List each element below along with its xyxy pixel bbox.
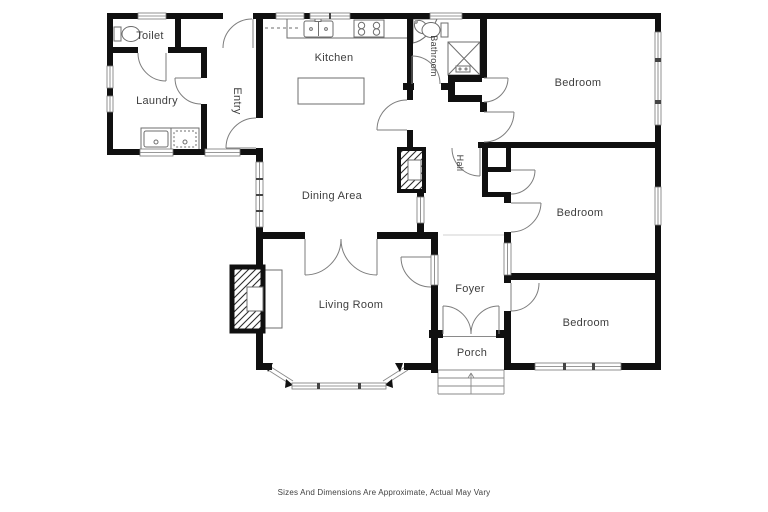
- room-label-laundry: Laundry: [136, 95, 178, 107]
- floor-plan: Toilet Laundry Entry Kitchen Bathroom Ha…: [0, 0, 768, 512]
- room-label-toilet: Toilet: [136, 30, 163, 42]
- window-icon: [417, 197, 424, 223]
- window-icon: [276, 13, 304, 19]
- door-swing-icon: [226, 118, 256, 148]
- window-icon: [292, 383, 386, 389]
- room-label-porch: Porch: [457, 347, 487, 359]
- floor-plan-canvas: Toilet Laundry Entry Kitchen Bathroom Ha…: [0, 0, 768, 512]
- room-label-bedroom-top: Bedroom: [555, 77, 602, 89]
- kitchen-sink-icon: [304, 18, 333, 38]
- window-icon: [205, 149, 240, 156]
- window-icon: [430, 13, 462, 19]
- door-swing-icon: [401, 257, 431, 287]
- door-swing-icon: [223, 19, 253, 48]
- room-label-living-room: Living Room: [319, 299, 383, 311]
- window-icon: [310, 13, 350, 19]
- room-label-bathroom: Bathroom: [429, 35, 439, 76]
- fireplace-icon: [399, 149, 424, 191]
- porch-steps-icon: [438, 337, 504, 395]
- room-label-kitchen: Kitchen: [315, 52, 354, 64]
- window-icon: [107, 96, 113, 112]
- door-swing-icon: [341, 239, 377, 275]
- laundry-tubs-icon: [141, 128, 199, 150]
- door-swing-icon: [175, 78, 201, 104]
- bay-window-icon: [268, 367, 408, 384]
- room-label-bedroom-bottom: Bedroom: [563, 317, 610, 329]
- room-label-foyer: Foyer: [455, 283, 485, 295]
- door-swing-icon: [377, 100, 407, 130]
- window-icon: [107, 66, 113, 88]
- room-label-dining-area: Dining Area: [302, 190, 363, 202]
- door-swing-icon: [511, 283, 539, 311]
- window-icon: [256, 162, 263, 227]
- window-icon: [655, 187, 661, 225]
- room-labels: Toilet Laundry Entry Kitchen Bathroom Ha…: [136, 30, 609, 359]
- window-icon: [655, 32, 661, 125]
- door-swing-icon: [484, 78, 508, 102]
- fireplace-icon: [232, 267, 263, 331]
- room-label-bedroom-middle: Bedroom: [557, 207, 604, 219]
- disclaimer-text: Sizes And Dimensions Are Approximate, Ac…: [278, 488, 491, 497]
- window-icon: [535, 363, 621, 370]
- door-swing-icon: [484, 112, 514, 142]
- door-swing-icon: [511, 203, 541, 232]
- door-swing-icon: [471, 306, 499, 334]
- room-label-entry: Entry: [231, 87, 243, 114]
- stove-icon: [354, 20, 384, 37]
- shower-icon: [448, 42, 480, 75]
- room-label-hall: Hall: [455, 155, 465, 172]
- window-icon: [504, 243, 511, 275]
- window-icon: [140, 149, 173, 156]
- kitchen-counter-icon: [265, 19, 407, 38]
- door-swing-icon: [138, 53, 166, 81]
- kitchen-island-icon: [298, 78, 364, 104]
- door-swing-icon: [511, 170, 535, 194]
- hearth-icon: [263, 270, 282, 328]
- door-swing-icon: [443, 306, 471, 334]
- walls: [107, 13, 661, 388]
- windows: [107, 13, 661, 389]
- door-swing-icon: [305, 239, 341, 275]
- window-icon: [138, 13, 166, 19]
- window-icon: [431, 255, 438, 285]
- fixtures: [114, 18, 504, 395]
